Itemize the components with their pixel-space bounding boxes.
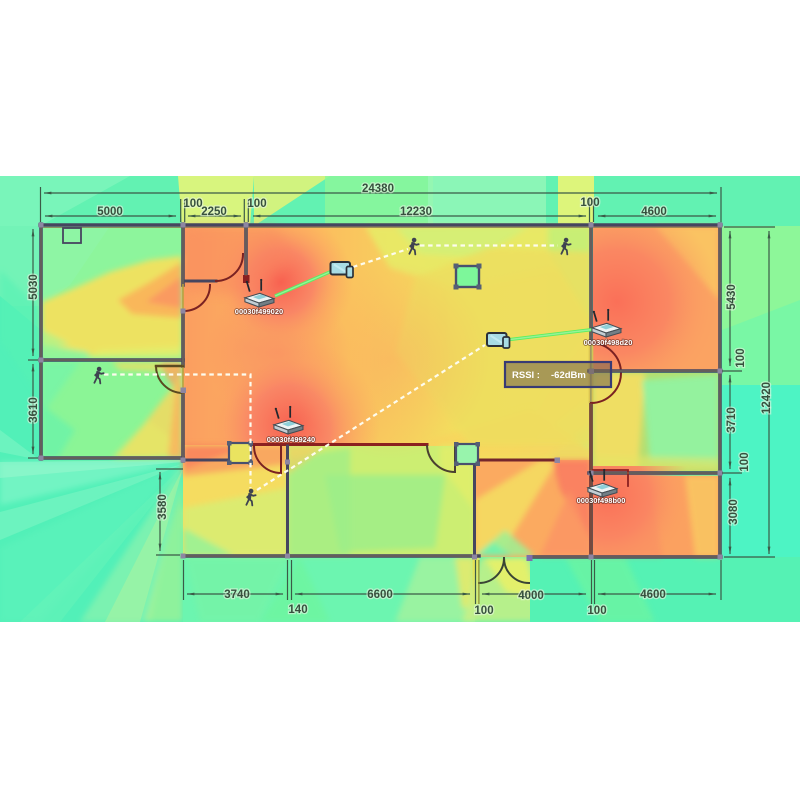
svg-text:5030: 5030 bbox=[28, 274, 40, 300]
svg-text:00030f498b00: 00030f498b00 bbox=[577, 496, 626, 505]
svg-text:100: 100 bbox=[183, 198, 202, 210]
svg-text:5000: 5000 bbox=[97, 206, 123, 218]
svg-text:00030f499240: 00030f499240 bbox=[267, 435, 315, 444]
svg-text:2250: 2250 bbox=[201, 206, 227, 218]
svg-text:00030f499020: 00030f499020 bbox=[235, 307, 283, 316]
svg-text:100: 100 bbox=[474, 605, 493, 617]
svg-text:100: 100 bbox=[247, 198, 266, 210]
svg-text:100: 100 bbox=[580, 197, 599, 209]
svg-text:4600: 4600 bbox=[641, 206, 667, 218]
svg-text:3080: 3080 bbox=[728, 499, 740, 525]
svg-text:24380: 24380 bbox=[362, 183, 394, 195]
svg-text:3610: 3610 bbox=[28, 397, 40, 423]
svg-text:00030f498d20: 00030f498d20 bbox=[584, 338, 633, 347]
svg-text:100: 100 bbox=[735, 348, 747, 367]
svg-text:100: 100 bbox=[739, 452, 751, 471]
svg-text:100: 100 bbox=[587, 605, 606, 617]
svg-text:4600: 4600 bbox=[640, 589, 666, 601]
svg-text:12420: 12420 bbox=[761, 382, 773, 414]
svg-text:4000: 4000 bbox=[518, 590, 544, 602]
svg-text:RSSI :: RSSI : bbox=[512, 370, 540, 381]
svg-text:6600: 6600 bbox=[367, 589, 393, 601]
svg-text:3580: 3580 bbox=[157, 494, 169, 520]
svg-text:3740: 3740 bbox=[224, 589, 250, 601]
svg-text:12230: 12230 bbox=[400, 206, 432, 218]
svg-text:140: 140 bbox=[288, 604, 307, 616]
svg-text:3710: 3710 bbox=[726, 407, 738, 433]
svg-text:5430: 5430 bbox=[726, 284, 738, 310]
svg-text:-62dBm: -62dBm bbox=[551, 370, 586, 381]
